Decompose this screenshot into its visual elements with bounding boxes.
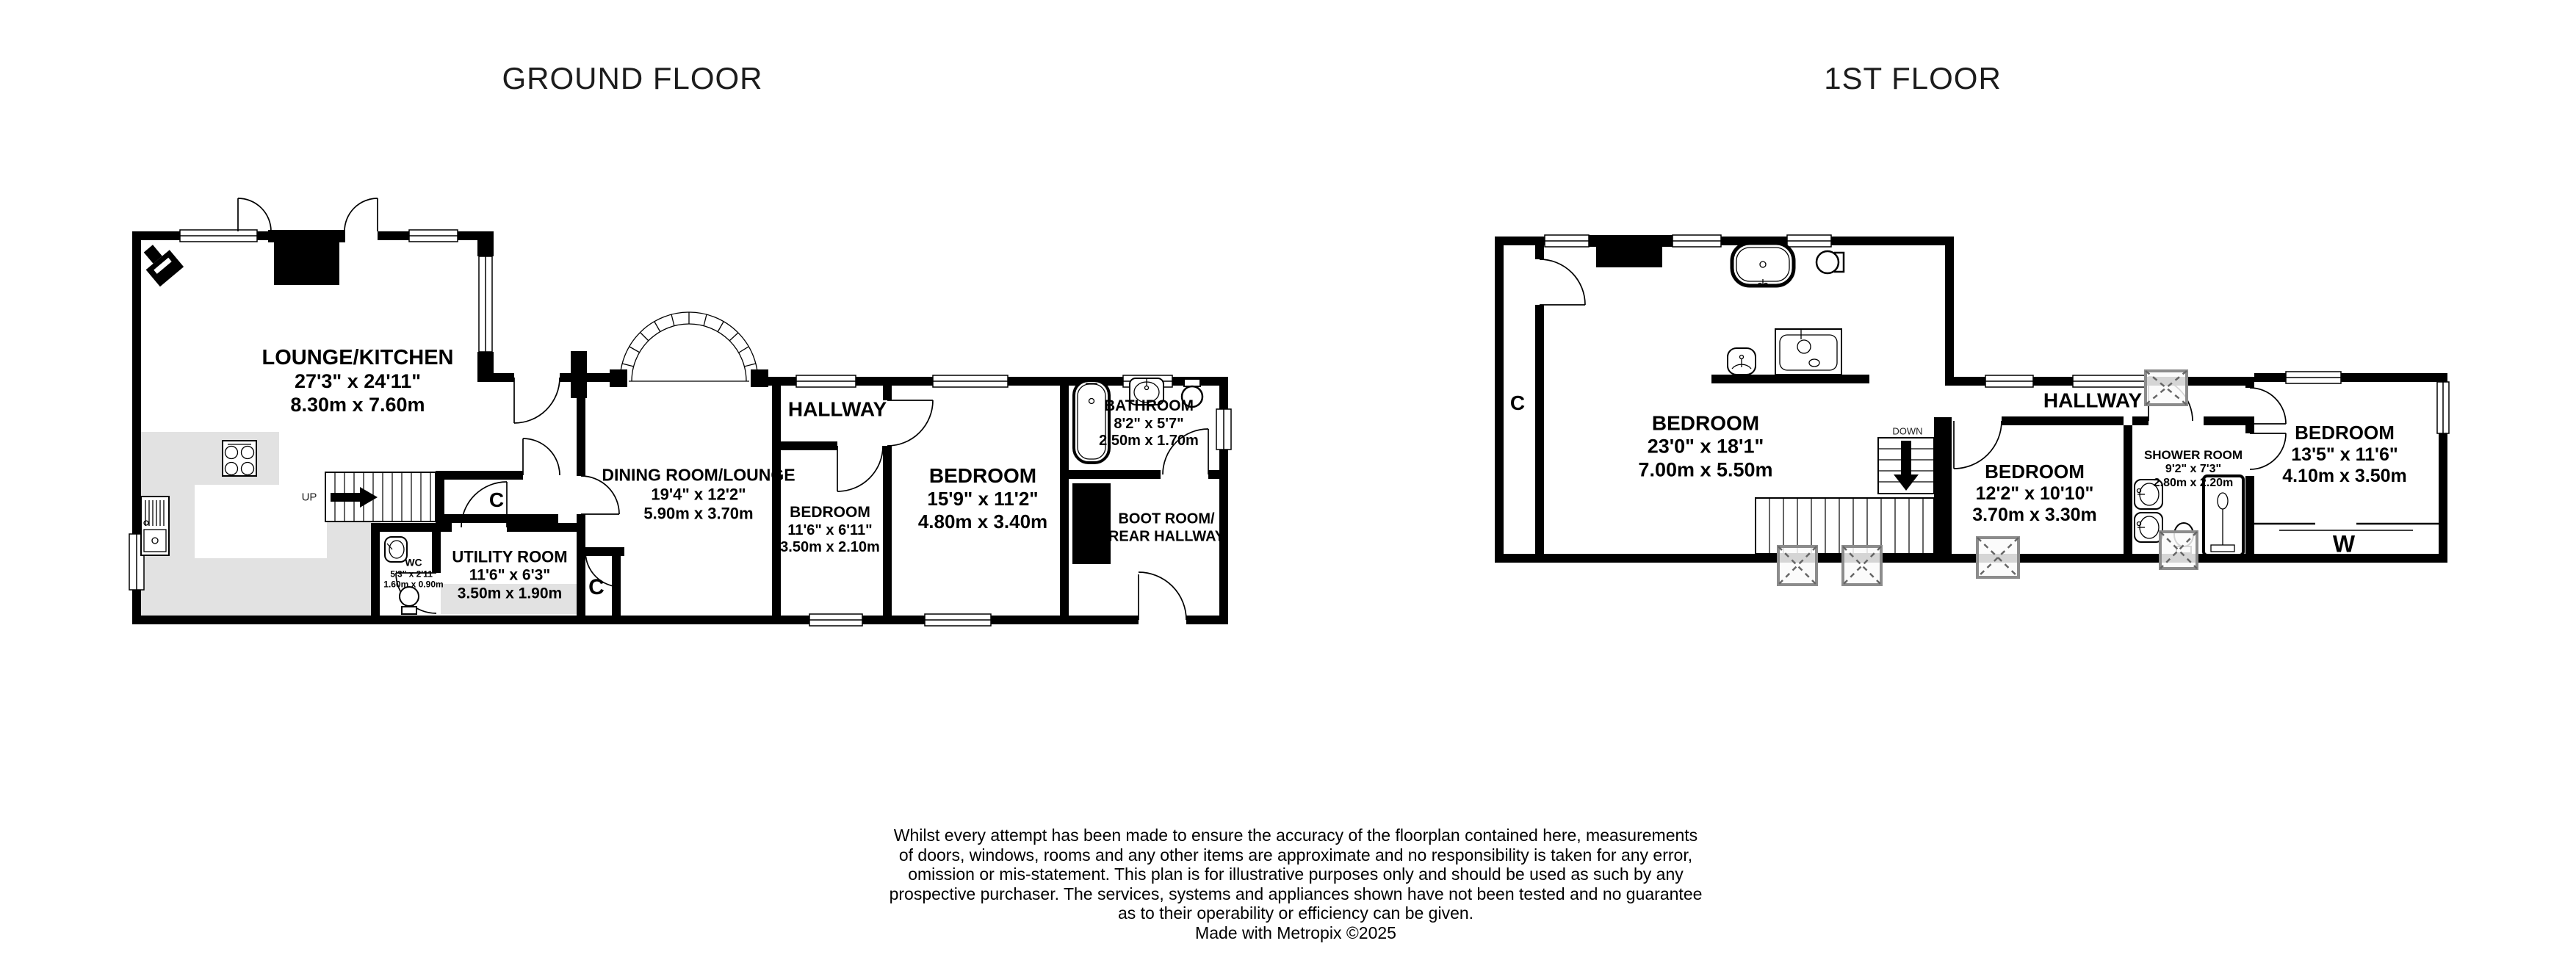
closet-label-ground-2: C: [588, 575, 605, 600]
room-name: BEDROOM: [918, 463, 1047, 488]
skylight-icon: [1778, 546, 1816, 585]
room-label-bedroom-2: BEDROOM 12'2" x 10'10" 3.70m x 3.30m: [1972, 461, 2097, 527]
metropix-credit: Made with Metropix ©2025: [671, 923, 1920, 943]
room-label-utility-room: UTILITY ROOM 11'6" x 6'3" 3.50m x 1.90m: [452, 547, 567, 602]
room-metric: 3.70m x 3.30m: [1972, 505, 2097, 527]
room-imperial: 11'6" x 6'11": [780, 522, 880, 540]
kitchen-sink-icon: [141, 497, 169, 555]
room-metric: 1.60m x 0.90m: [383, 579, 443, 589]
room-imperial: 23'0" x 18'1": [1638, 436, 1772, 459]
room-label-shower-room: SHOWER ROOM 9'2" x 7'3" 2.80m x 2.20m: [2144, 448, 2243, 491]
room-metric: 3.50m x 2.10m: [780, 539, 880, 557]
first-floor-plan: [1495, 235, 2449, 585]
stairs-down-label: DOWN: [1892, 426, 1922, 437]
room-label-bedroom-small: BEDROOM 11'6" x 6'11" 3.50m x 2.10m: [780, 504, 880, 557]
room-label-bedroom-1: BEDROOM 23'0" x 18'1" 7.00m x 5.50m: [1638, 411, 1772, 483]
room-name: HALLWAY: [2043, 388, 2142, 412]
floorplan-page: GROUND FLOOR 1ST FLOOR LOUNGE/KITCHEN 27…: [0, 0, 2576, 960]
disclaimer-line: omission or mis-statement. This plan is …: [671, 865, 1920, 884]
ground-floor-title: GROUND FLOOR: [502, 61, 762, 96]
room-label-hallway-ground: HALLWAY: [788, 397, 887, 421]
disclaimer-line: Whilst every attempt has been made to en…: [671, 826, 1920, 845]
room-name: HALLWAY: [788, 397, 887, 421]
disclaimer-line: as to their operability or efficiency ca…: [671, 903, 1920, 923]
room-imperial: 8'2" x 5'7": [1099, 416, 1199, 433]
room-label-dining-room: DINING ROOM/LOUNGE 19'4" x 12'2" 5.90m x…: [602, 465, 795, 523]
skylight-icon: [2146, 371, 2187, 405]
room-name: UTILITY ROOM: [452, 547, 567, 566]
room-name: LOUNGE/KITCHEN: [262, 345, 454, 370]
room-imperial: 12'2" x 10'10": [1972, 483, 2097, 505]
skylight-icon: [2160, 532, 2197, 569]
room-metric: 4.10m x 3.50m: [2282, 466, 2407, 488]
room-label-lounge-kitchen: LOUNGE/KITCHEN 27'3" x 24'11" 8.30m x 7.…: [262, 345, 454, 417]
room-metric: 8.30m x 7.60m: [262, 394, 454, 417]
room-label-bedroom-3: BEDROOM 13'5" x 11'6" 4.10m x 3.50m: [2282, 422, 2407, 488]
stairs-down: [1756, 438, 1934, 554]
room-metric: 3.50m x 1.90m: [452, 585, 567, 603]
room-name: BEDROOM: [1638, 411, 1772, 436]
room-label-bedroom-main: BEDROOM 15'9" x 11'2" 4.80m x 3.40m: [918, 463, 1047, 533]
disclaimer-line: of doors, windows, rooms and any other i…: [671, 845, 1920, 865]
room-imperial: 27'3" x 24'11": [262, 370, 454, 394]
wc-toilet-icon: [400, 587, 419, 614]
skylight-icon: [1843, 546, 1881, 585]
room-metric: 2.50m x 1.70m: [1099, 433, 1199, 450]
room-imperial: 11'6" x 6'3": [452, 566, 567, 585]
vanity-sink-icon: [1775, 329, 1841, 375]
room-label-boot-room: BOOT ROOM/ REAR HALLWAY: [1108, 510, 1224, 545]
wardrobe-label: W: [2333, 531, 2355, 558]
first-windows: [1545, 235, 2449, 433]
disclaimer-line: prospective purchaser. The services, sys…: [671, 884, 1920, 904]
first-walls: [1495, 235, 2447, 563]
closet-label-first: C: [1510, 391, 1525, 415]
first-floor-title: 1ST FLOOR: [1824, 61, 2002, 96]
room-imperial: 15'9" x 11'2": [918, 488, 1047, 510]
room-name: DINING ROOM/LOUNGE: [602, 465, 795, 485]
disclaimer-text: Whilst every attempt has been made to en…: [671, 826, 1920, 942]
room-imperial: 13'5" x 11'6": [2282, 444, 2407, 466]
shower-sink-2-icon: [2135, 513, 2162, 542]
room-name: REAR HALLWAY: [1108, 528, 1224, 546]
hob-icon: [223, 441, 256, 476]
room-imperial: 9'2" x 7'3": [2144, 463, 2243, 477]
room-label-bathroom: BATHROOM 8'2" x 5'7" 2.50m x 1.70m: [1099, 397, 1199, 450]
wardrobe-doors: [2254, 524, 2439, 530]
bay-window-arch: [620, 312, 758, 381]
room-name: WC: [383, 557, 443, 569]
room-name: BEDROOM: [1972, 461, 2097, 483]
stairs-up-label: UP: [302, 491, 317, 504]
room-name: SHOWER ROOM: [2144, 448, 2243, 463]
room-imperial: 19'4" x 12'2": [602, 486, 795, 505]
room-metric: 5.90m x 3.70m: [602, 505, 795, 524]
room-name: BEDROOM: [2282, 422, 2407, 444]
room-name: BATHROOM: [1099, 397, 1199, 416]
room-metric: 2.80m x 2.20m: [2144, 477, 2243, 491]
room-label-hallway-first: HALLWAY: [2043, 388, 2142, 412]
room-metric: 7.00m x 5.50m: [1638, 459, 1772, 483]
room-label-wc: WC 5'3" x 2'11" 1.60m x 0.90m: [383, 557, 443, 590]
wood-burner-icon: [137, 239, 184, 286]
freestanding-bath-icon: [1732, 243, 1794, 287]
skylight-icon: [1977, 538, 2018, 577]
stairs-up: [325, 472, 436, 521]
pedestal-sink-icon: [1728, 348, 1756, 375]
room-name: BEDROOM: [780, 504, 880, 522]
bedroom-toilet-icon: [1816, 251, 1844, 273]
room-imperial: 5'3" x 2'11": [383, 569, 443, 579]
room-name: BOOT ROOM/: [1108, 510, 1224, 528]
room-metric: 4.80m x 3.40m: [918, 510, 1047, 533]
closet-label-ground-1: C: [489, 488, 504, 512]
